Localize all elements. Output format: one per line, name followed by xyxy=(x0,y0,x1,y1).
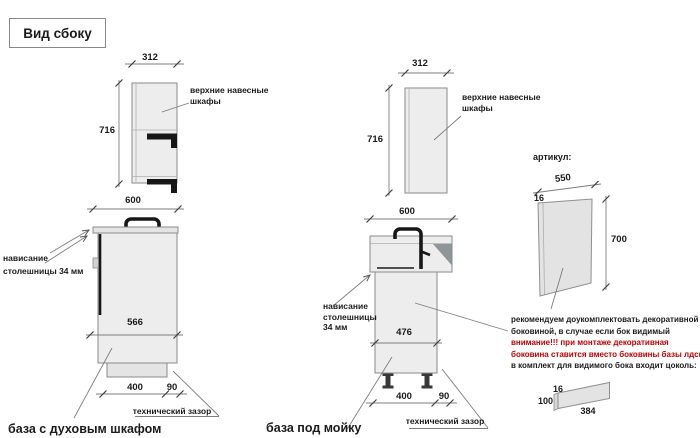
note-block: рекомендуем доукомплектовать декоративно… xyxy=(511,314,700,372)
cabinet-body xyxy=(98,233,177,363)
mid-overhang-label: нависание столешницы 34 мм xyxy=(323,301,377,333)
label-line: шкафы xyxy=(462,103,541,114)
note-line-warning: внимание!!! при монтаже декоративная xyxy=(511,337,700,349)
dim-mid-base-width: 600 xyxy=(399,206,415,217)
mid-wall-cabinet-label: верхние навесные шкафы xyxy=(462,92,541,114)
label-line: столешницы 34 мм xyxy=(3,265,83,278)
shelf-bracket-icon xyxy=(147,179,177,193)
adjustable-leg-icon xyxy=(383,374,394,389)
cabinet-body xyxy=(375,272,437,373)
label-line: нависание xyxy=(3,252,83,265)
dim-left-wall-width: 312 xyxy=(142,52,158,63)
note-line-warning: боковина ставится вместо боковины базы л… xyxy=(511,349,700,361)
dim-mid-gap: 90 xyxy=(439,391,450,402)
dim-left-gap: 90 xyxy=(167,382,178,393)
dim-plinth-thickness: 16 xyxy=(553,384,563,394)
middle-wall-cabinet xyxy=(386,70,462,197)
sink-top xyxy=(370,236,452,272)
note-line: боковиной, в случае если бок видимый xyxy=(511,326,700,338)
dim-mid-base-front: 476 xyxy=(396,327,412,338)
left-overhang-label: нависание столешницы 34 мм xyxy=(3,252,83,278)
label-line: столешницы xyxy=(323,312,377,323)
label-line: нависание xyxy=(323,301,377,312)
label-line: верхние навесные xyxy=(190,85,269,96)
countertop xyxy=(93,227,178,233)
label-line: шкафы xyxy=(190,96,269,107)
dim-plinth-length: 384 xyxy=(580,406,595,416)
plinth xyxy=(107,363,167,377)
dim-left-wall-height: 716 xyxy=(87,125,115,136)
dim-panel-width: 550 xyxy=(554,172,571,185)
article-label: артикул: xyxy=(533,152,571,162)
view-title-box: Вид сбоку xyxy=(9,18,106,48)
dim-left-base-width: 600 xyxy=(125,195,141,206)
left-base-caption: база с духовым шкафом xyxy=(8,422,161,436)
note-line: рекомендуем доукомплектовать декоративно… xyxy=(511,314,700,326)
dim-mid-wall-width: 312 xyxy=(412,58,428,69)
label-line: верхние навесные xyxy=(462,92,541,103)
dim-mid-door-width: 400 xyxy=(396,391,412,402)
dim-plinth-height: 100 xyxy=(530,396,553,406)
dim-panel-height: 700 xyxy=(611,234,627,245)
oven-handle-icon xyxy=(126,219,159,227)
dim-left-base-front: 566 xyxy=(127,317,143,328)
dim-mid-wall-height: 716 xyxy=(355,134,383,145)
mid-base-caption: база под мойку xyxy=(266,421,361,435)
adjustable-leg-icon xyxy=(422,374,433,389)
drawing-canvas xyxy=(0,0,700,438)
left-wall-cabinet-label: верхние навесные шкафы xyxy=(190,85,269,107)
dim-left-door-width: 400 xyxy=(127,382,143,393)
dim-panel-thickness: 16 xyxy=(534,193,544,203)
note-line: в комплект для видимого бока входит цоко… xyxy=(511,360,700,372)
drawing-page: Вид сбоку 312 716 верхние навесные шкафы… xyxy=(0,0,700,438)
left-tech-gap-label: технический зазор xyxy=(133,406,212,417)
view-title: Вид сбоку xyxy=(23,26,92,41)
mid-tech-gap-label: технический зазор xyxy=(406,416,485,427)
decorative-side-panel-drawing xyxy=(533,181,610,309)
left-wall-cabinet xyxy=(132,83,177,193)
label-line: 34 мм xyxy=(323,322,377,333)
